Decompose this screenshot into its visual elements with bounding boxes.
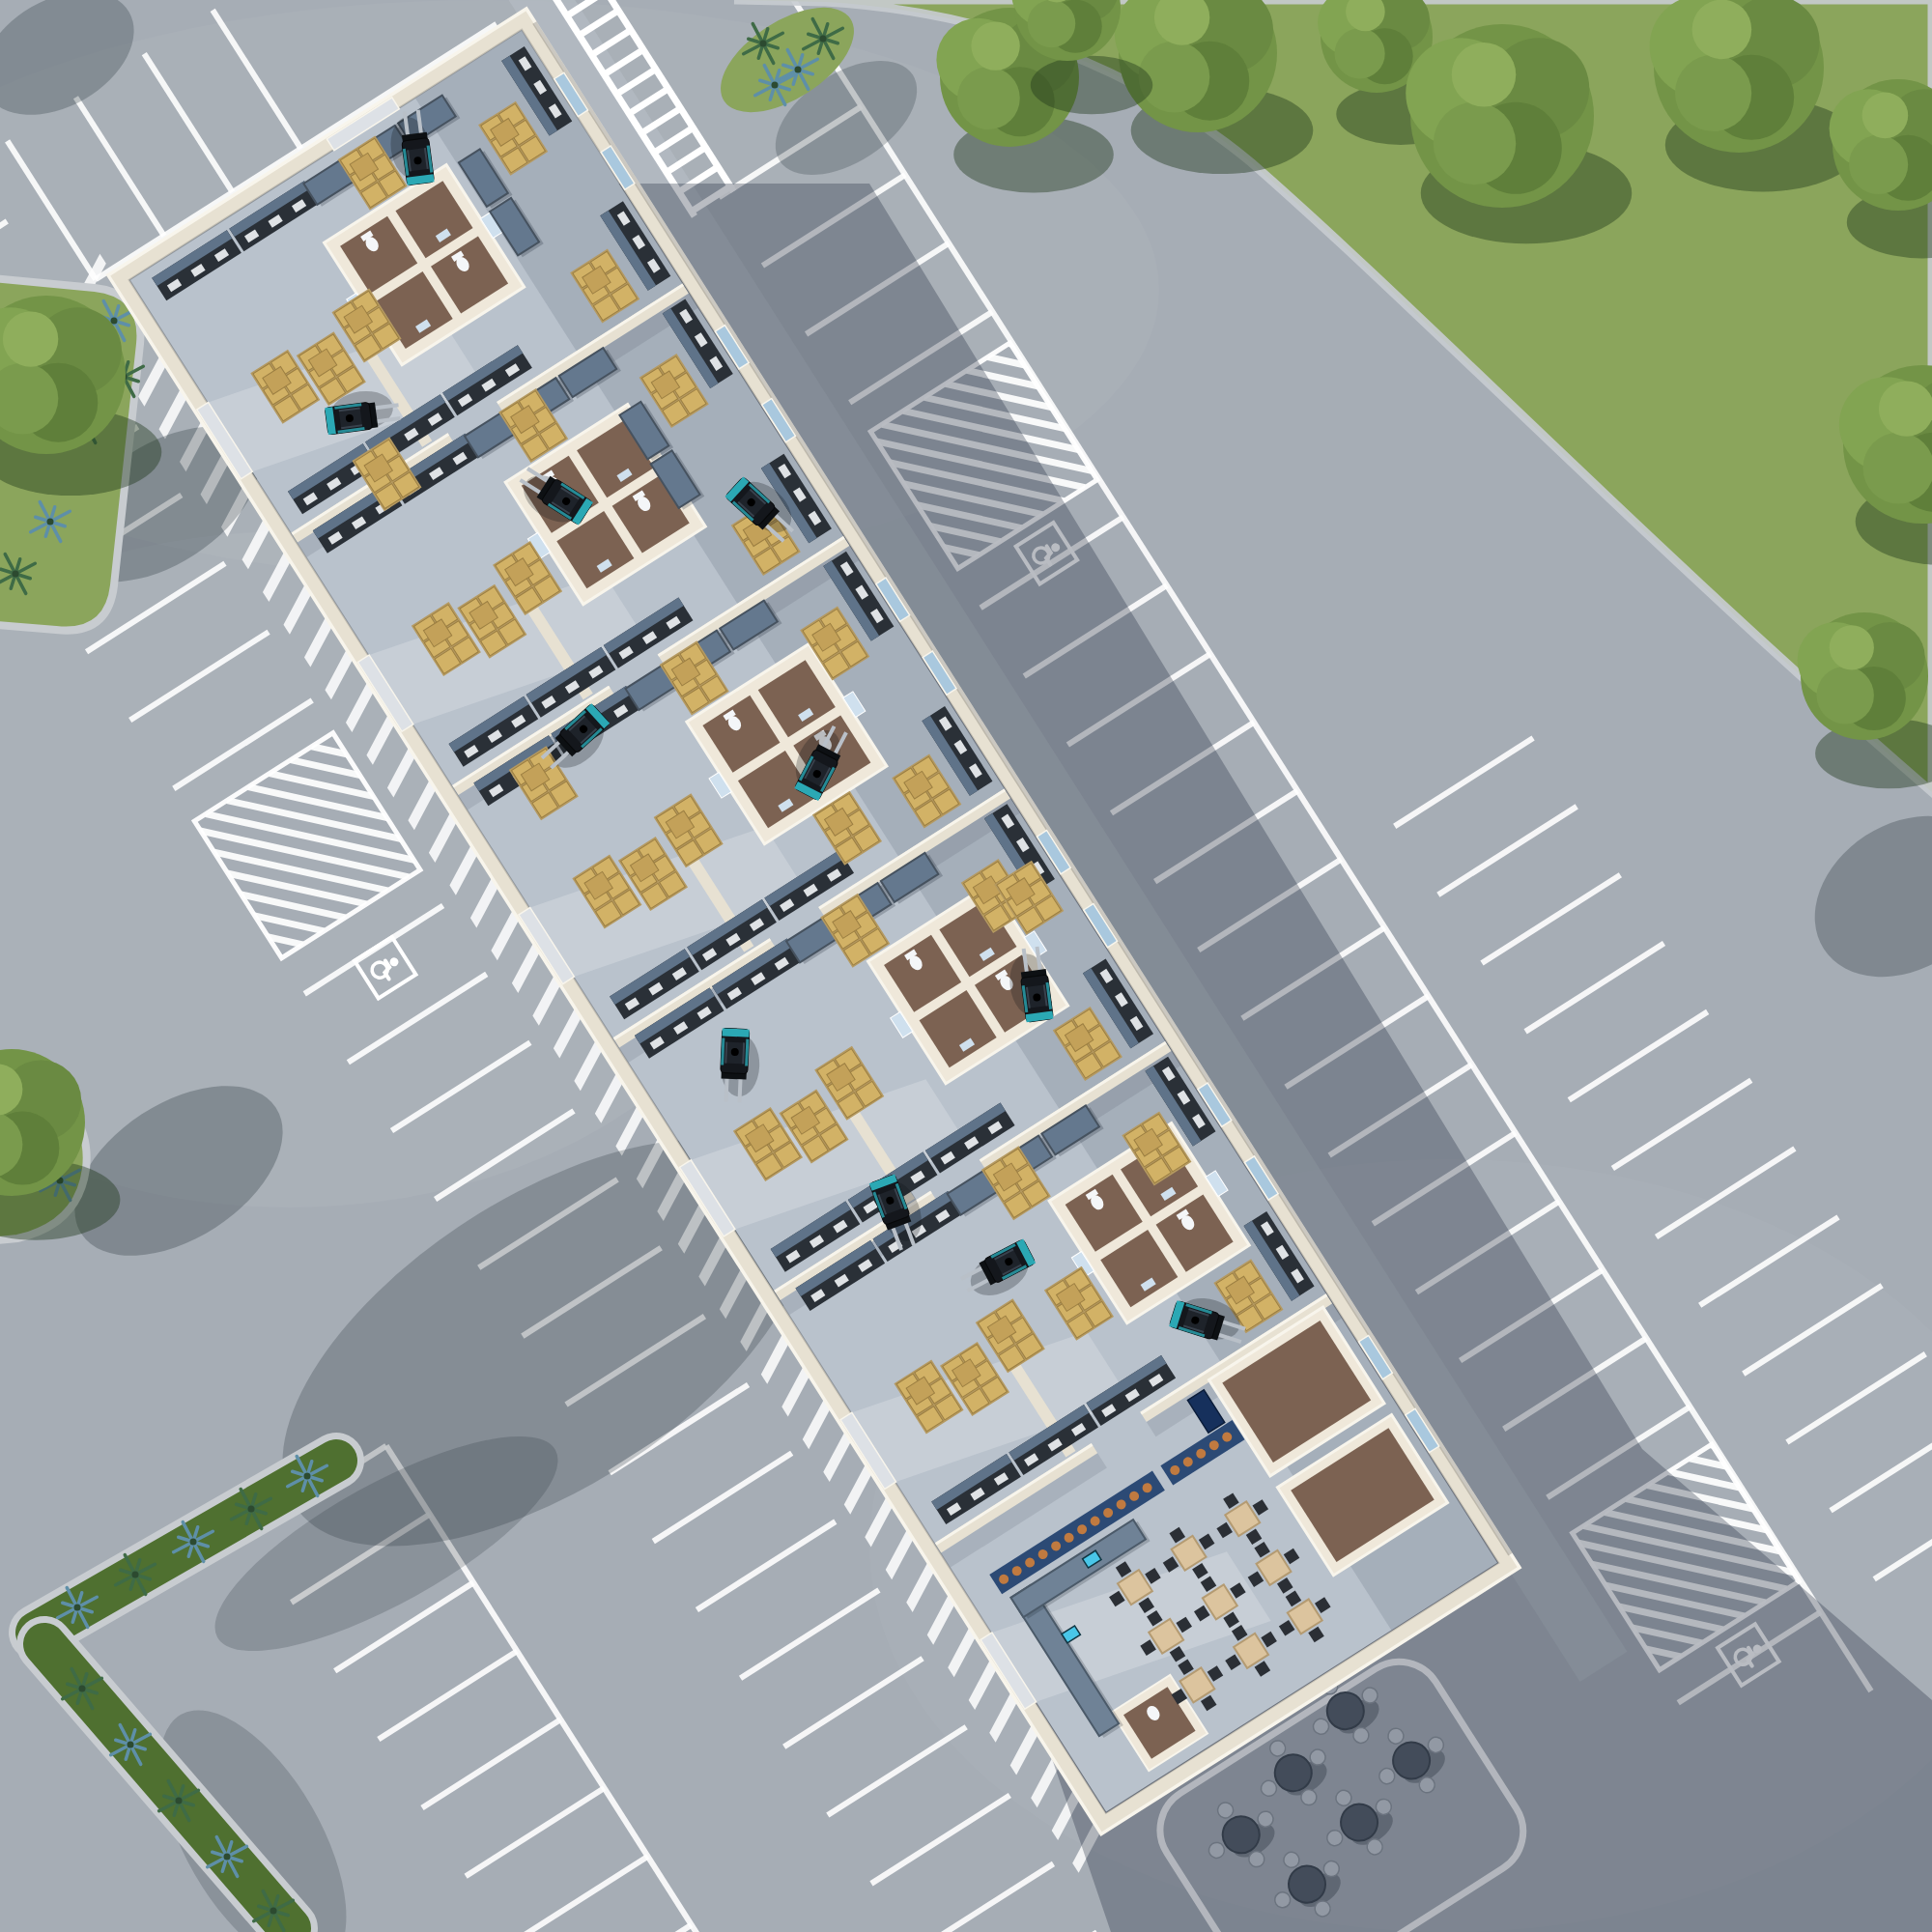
aerial-site-render bbox=[0, 0, 1932, 1932]
warehouse-aerial-scene bbox=[0, 0, 1932, 1932]
tree-shadow bbox=[1031, 56, 1153, 115]
tree bbox=[1798, 612, 1932, 788]
